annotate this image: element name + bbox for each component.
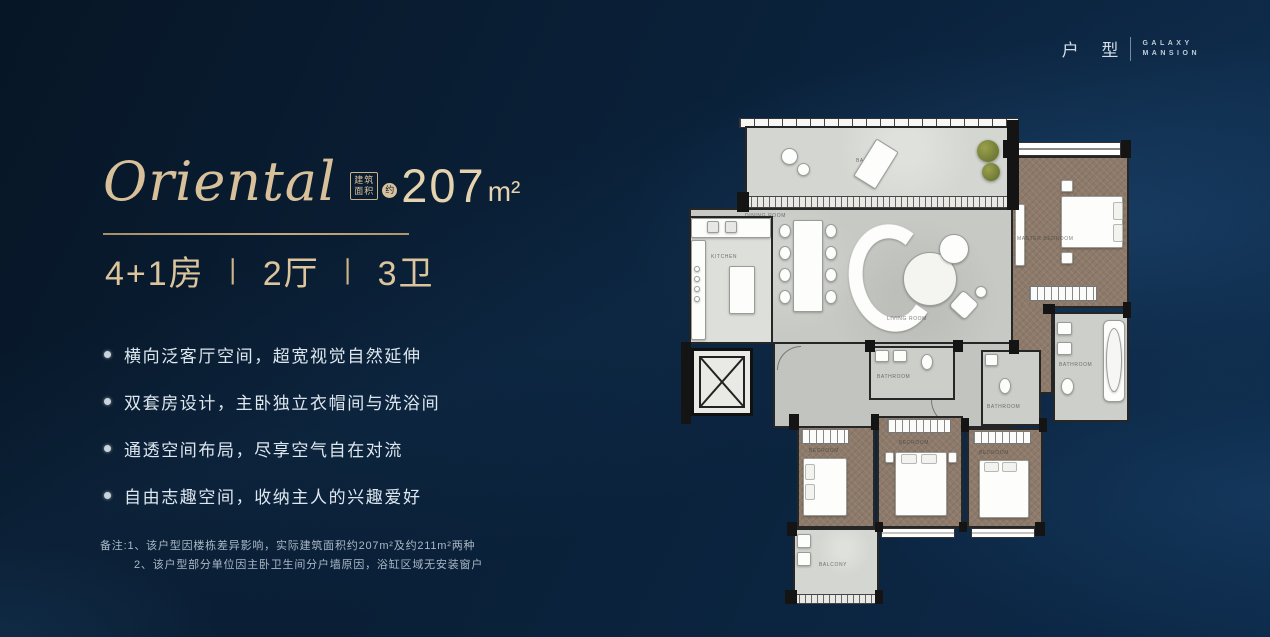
wardrobe [973, 431, 1031, 444]
wall-segment [875, 590, 883, 604]
slide: 户 型 GALAXY MANSION Oriental 建筑 面积 约 207 … [0, 0, 1270, 637]
layout-config: 4+1房 丨 2厅 丨 3卫 [105, 246, 435, 295]
kitchen-sink [707, 221, 719, 233]
footnote-line: 备注: 1、该户型因楼栋差异影响，实际建筑面积约207m²及约211m²两种 [100, 537, 483, 556]
nightstand [1061, 180, 1073, 192]
dining-chair [779, 268, 791, 282]
area-badge-line2: 面积 [354, 186, 374, 197]
cooktop-burner [694, 276, 700, 282]
pillow [921, 454, 937, 464]
gold-divider [103, 233, 409, 235]
dining-chair [825, 246, 837, 260]
walk-in-closet [1029, 286, 1097, 301]
footnote-line: 2、该户型部分单位因主卧卫生间分户墙原因，浴缸区域无安装窗户 [100, 556, 483, 575]
brand-en-label: GALAXY MANSION [1142, 39, 1200, 59]
dining-chair [825, 224, 837, 238]
toilet [921, 354, 933, 370]
footnote-prefix: 备注: [100, 537, 127, 556]
elevator-x-icon [694, 351, 750, 413]
bedroom-window [881, 528, 955, 538]
wall-segment [865, 340, 875, 352]
dining-chair [825, 290, 837, 304]
room-label: BATHROOM [987, 404, 1020, 410]
dining-chair [825, 268, 837, 282]
nightstand [885, 452, 894, 463]
bath-sink [1057, 342, 1072, 355]
room-label: DINING ROOM [745, 213, 786, 219]
bath-sink [1057, 322, 1072, 335]
cooktop-burner [694, 286, 700, 292]
page-title: Oriental [103, 156, 336, 208]
kitchen-island [729, 266, 755, 314]
wall-segment [875, 522, 883, 532]
config-bedrooms: 4+1房 [105, 246, 205, 295]
feature-list: 横向泛客厅空间，超宽视觉自然延伸 双套房设计，主卧独立衣帽间与洗浴间 通透空间布… [104, 344, 440, 532]
pillow [901, 454, 917, 464]
area-unit: m² [488, 176, 521, 208]
brand-en-line2: MANSION [1142, 49, 1200, 59]
header-title-row: Oriental 建筑 面积 约 207 m² [103, 156, 520, 208]
wall-segment [737, 192, 749, 212]
footnote-text: 2、该户型部分单位因主卧卫生间分户墙原因，浴缸区域无安装窗户 [134, 556, 483, 575]
nightstand [1061, 252, 1073, 264]
room-label: BEDROOM [899, 440, 929, 446]
wall-segment [1039, 418, 1047, 432]
feature-item: 通透空间布局，尽享空气自在对流 [104, 438, 440, 458]
balcony-railing [745, 196, 1013, 208]
pillow [984, 462, 999, 472]
dining-chair [779, 246, 791, 260]
room-label: BEDROOM [809, 448, 839, 454]
cooktop-burner [694, 266, 700, 272]
nightstand [948, 452, 957, 463]
cooktop-burner [694, 296, 700, 302]
feature-item: 双套房设计，主卧独立衣帽间与洗浴间 [104, 391, 440, 411]
side-table [975, 286, 987, 298]
bath-sink [893, 350, 907, 362]
pillow [805, 464, 815, 480]
config-separator: 丨 [335, 250, 363, 291]
feature-text: 横向泛客厅空间，超宽视觉自然延伸 [124, 342, 422, 367]
wardrobe [887, 419, 951, 433]
kitchen-sink [725, 221, 737, 233]
approx-badge: 约 [382, 183, 397, 198]
room-label: BALCONY [819, 562, 847, 568]
feature-text: 自由志趣空间，收纳主人的兴趣爱好 [124, 483, 422, 508]
wardrobe [801, 429, 849, 444]
balcony-cabinet [797, 534, 811, 548]
area-value: 207 [401, 164, 485, 208]
bullet-dot-icon [104, 445, 111, 452]
bathtub-basin [1106, 328, 1122, 392]
room-label: KITCHEN [711, 254, 737, 260]
wall-segment [1003, 140, 1013, 158]
wall-segment [1009, 340, 1019, 354]
bullet-dot-icon [104, 398, 111, 405]
master-tv-cabinet [1015, 204, 1025, 266]
room-label: MASTER BEDROOM [1017, 236, 1073, 242]
toilet [1061, 378, 1074, 395]
room-label: BEDROOM [979, 450, 1009, 456]
wall-segment [1007, 120, 1019, 210]
wall-segment [1035, 522, 1045, 536]
plant-icon [982, 163, 1000, 181]
wall-segment [1121, 140, 1131, 158]
wall-segment [1123, 302, 1131, 318]
dining-chair [779, 290, 791, 304]
dining-chair [779, 224, 791, 238]
config-halls: 2厅 [263, 246, 320, 295]
dining-table [793, 220, 823, 312]
balcony-stool [797, 163, 810, 176]
feature-item: 自由志趣空间，收纳主人的兴趣爱好 [104, 485, 440, 505]
feature-item: 横向泛客厅空间，超宽视觉自然延伸 [104, 344, 440, 364]
toilet [999, 378, 1011, 394]
wall-segment [959, 522, 967, 532]
brand-divider [1130, 37, 1131, 61]
bath-sink [875, 350, 889, 362]
room-label: BATHROOM [1059, 362, 1092, 368]
area-badge: 建筑 面积 [350, 172, 378, 200]
bullet-dot-icon [104, 492, 111, 499]
room-label: LIVING ROOM [887, 316, 927, 322]
round-table [939, 234, 969, 264]
balcony-table [781, 148, 798, 165]
feature-text: 双套房设计，主卧独立衣帽间与洗浴间 [124, 389, 440, 414]
plant-icon [977, 140, 999, 162]
wall-segment [681, 342, 691, 424]
brand-cn-label: 户 型 [1062, 36, 1128, 61]
elevator-shaft [691, 348, 753, 416]
config-baths: 3卫 [378, 246, 435, 295]
room-label: BATHROOM [877, 374, 910, 380]
wall-segment [785, 590, 797, 604]
wall-segment [1043, 304, 1055, 314]
wall-segment [789, 414, 799, 430]
feature-text: 通透空间布局，尽享空气自在对流 [124, 436, 403, 461]
footnotes: 备注: 1、该户型因楼栋差异影响，实际建筑面积约207m²及约211m²两种 2… [100, 537, 483, 575]
pillow [1113, 224, 1123, 242]
wall-segment [953, 340, 963, 352]
wall-segment [871, 414, 879, 430]
bullet-dot-icon [104, 351, 111, 358]
config-separator: 丨 [220, 250, 248, 291]
footnote-text: 1、该户型因楼栋差异影响，实际建筑面积约207m²及约211m²两种 [127, 537, 475, 556]
pillow [1113, 202, 1123, 220]
brand-mark: 户 型 GALAXY MANSION [1062, 36, 1200, 61]
master-window [1015, 142, 1121, 156]
wall-segment [961, 418, 969, 432]
floorplan: BALCONY KITCHEN DINING ROOM [681, 116, 1139, 612]
area-badge-line1: 建筑 [354, 175, 374, 186]
balcony-cabinet [797, 552, 811, 566]
pillow [805, 484, 815, 500]
bath-sink [985, 354, 998, 366]
balcony-railing [793, 594, 879, 604]
pillow [1002, 462, 1017, 472]
brand-en-line1: GALAXY [1142, 39, 1200, 49]
wall-segment [787, 522, 797, 536]
bedroom-window [971, 528, 1035, 538]
